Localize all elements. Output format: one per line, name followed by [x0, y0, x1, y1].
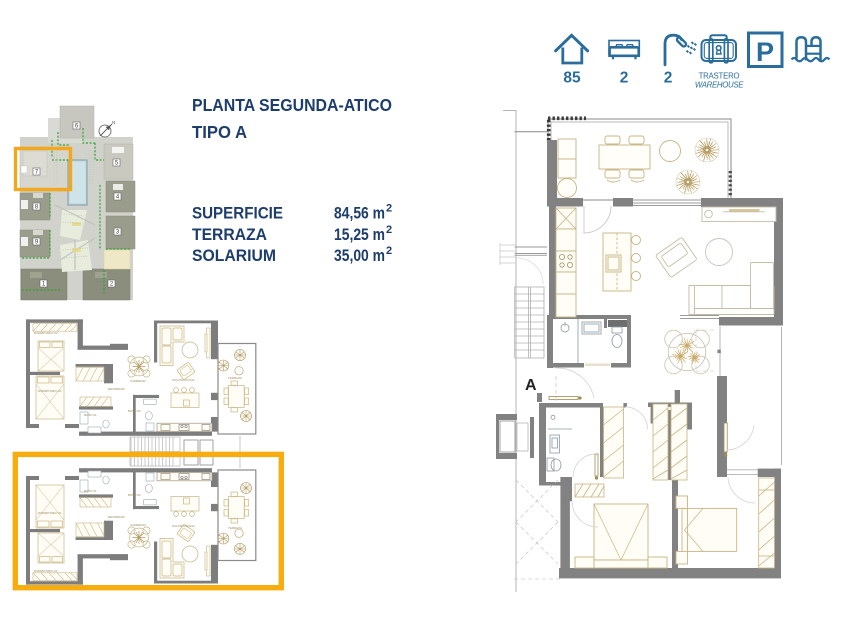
svg-text:PLANTA SEGUNDA-ATICO: PLANTA SEGUNDA-ATICO [192, 95, 392, 115]
svg-text:RECIBIDOR: RECIBIDOR [108, 387, 126, 391]
svg-text:2: 2 [386, 224, 392, 236]
svg-text:SUPERFICIE: SUPERFICIE [192, 204, 283, 223]
svg-text:DORMITORIO 02: DORMITORIO 02 [34, 569, 58, 573]
svg-text:2: 2 [664, 70, 673, 87]
svg-text:SALÓN/COCINA: SALÓN/COCINA [172, 377, 195, 382]
svg-text:COMEDOR: COMEDOR [130, 379, 147, 383]
svg-text:RECIBIDOR: RECIBIDOR [108, 515, 126, 519]
svg-text:35,00 m: 35,00 m [334, 246, 385, 265]
svg-text:2: 2 [620, 70, 629, 87]
svg-text:2: 2 [386, 203, 392, 215]
svg-text:DORMITORIO 02: DORMITORIO 02 [34, 331, 58, 335]
svg-text:DORMITORIO 01: DORMITORIO 01 [38, 389, 62, 393]
svg-text:15,25 m: 15,25 m [334, 225, 385, 244]
svg-text:A: A [525, 377, 537, 394]
svg-text:BAÑO 02: BAÑO 02 [128, 492, 141, 497]
svg-text:TIPO A: TIPO A [192, 122, 247, 142]
svg-text:N: N [112, 120, 115, 125]
svg-text:TRASTERO: TRASTERO [699, 72, 740, 81]
svg-text:2: 2 [386, 245, 392, 257]
svg-text:BAÑO 01: BAÑO 01 [84, 488, 97, 493]
svg-text:BAÑO 01: BAÑO 01 [84, 412, 97, 417]
svg-text:SALÓN/COCINA: SALÓN/COCINA [172, 523, 195, 528]
svg-text:TERRAZA: TERRAZA [228, 526, 242, 530]
svg-text:DORMITORIO 01: DORMITORIO 01 [38, 511, 62, 515]
svg-text:84,56 m: 84,56 m [334, 204, 385, 223]
svg-text:WAREHOUSE: WAREHOUSE [695, 81, 744, 90]
svg-text:BAÑO 02: BAÑO 02 [128, 408, 141, 413]
svg-text:TERRAZA: TERRAZA [228, 376, 242, 380]
svg-text:85: 85 [563, 70, 581, 87]
svg-text:COMEDOR: COMEDOR [130, 523, 147, 527]
svg-text:TERRAZA: TERRAZA [192, 225, 267, 244]
svg-text:SOLARIUM: SOLARIUM [192, 246, 276, 265]
svg-text:P: P [756, 37, 774, 67]
